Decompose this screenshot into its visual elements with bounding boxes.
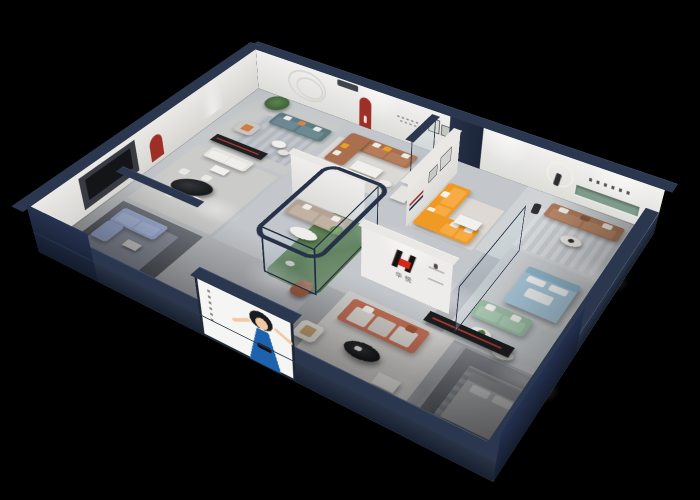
red-arch-niche bbox=[359, 96, 371, 130]
pillow-tan bbox=[299, 324, 317, 337]
pillow-orange bbox=[240, 124, 255, 132]
pillow-yellow bbox=[340, 143, 350, 149]
isometric-scene: 华悦 bbox=[0, 0, 700, 500]
woman-left-arm bbox=[231, 318, 250, 322]
woman-right-arm bbox=[274, 328, 294, 346]
shelf-vase bbox=[434, 263, 438, 270]
floor-plan: 华悦 bbox=[39, 89, 654, 482]
niche-figurine bbox=[364, 115, 367, 123]
pillow-white bbox=[332, 150, 342, 156]
red-arch-niche bbox=[149, 131, 165, 162]
table-decor-item bbox=[353, 345, 363, 352]
showroom-render-canvas: 华悦 bbox=[0, 0, 700, 500]
table-decor-item bbox=[567, 238, 575, 243]
picture-frame bbox=[428, 164, 437, 184]
